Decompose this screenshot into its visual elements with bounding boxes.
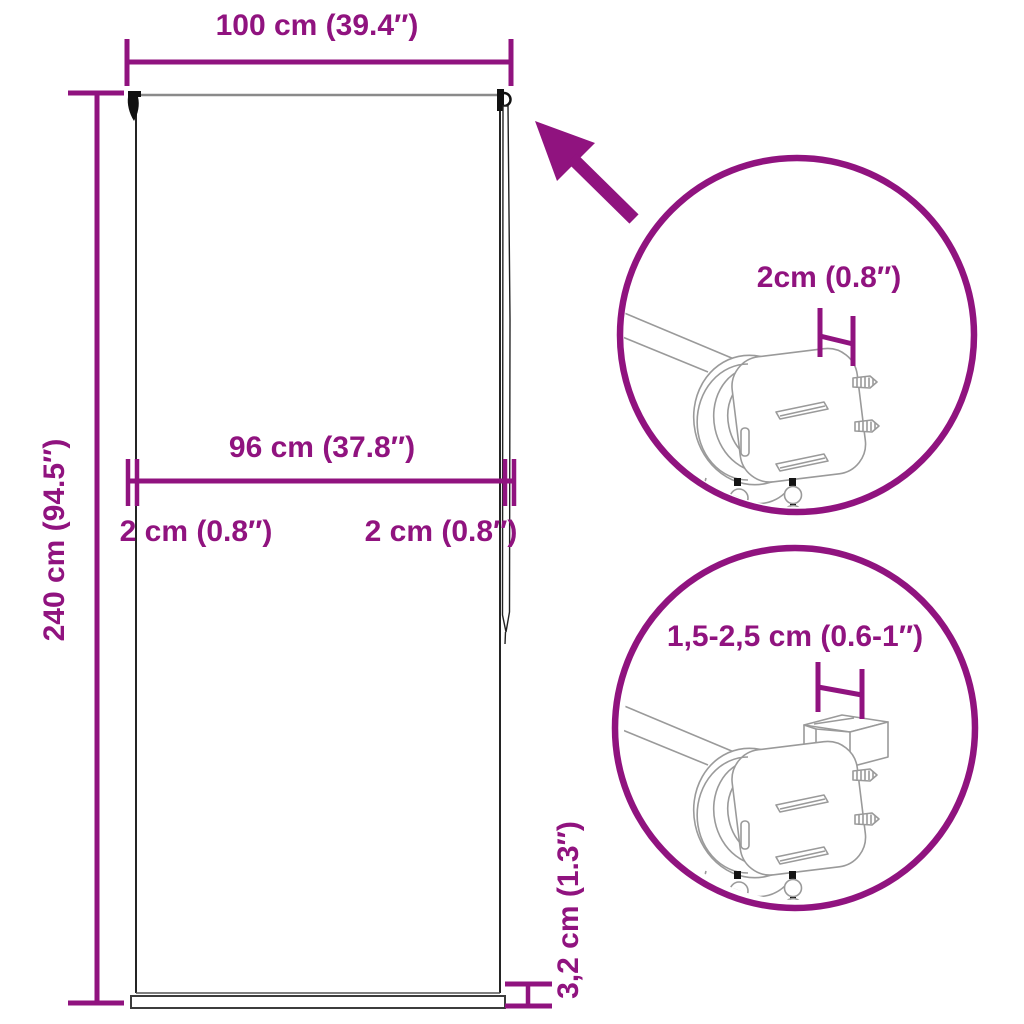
inset-screw-mount: [620, 158, 974, 525]
inset-clamp-mount: [615, 548, 975, 918]
screw-mount-drawing: [620, 312, 879, 525]
mount-bracket-left: [128, 91, 141, 121]
bottom-bar-height-label: 3,2 cm (1.3″): [551, 735, 591, 1024]
blind-bottom-bar: [131, 996, 505, 1008]
clamp-range-label: 1,5-2,5 cm (0.6-1″): [645, 619, 945, 655]
screw-mount-depth-label: 2cm (0.8″): [679, 260, 979, 296]
dimension-total-width: [127, 39, 511, 86]
clamp-mount-drawing: [620, 705, 888, 918]
pull-chain-loop: [503, 106, 511, 644]
dimension-fabric-width: [128, 459, 514, 506]
inset-dimension-bracket: [818, 662, 862, 719]
diagram-artwork: [0, 0, 1024, 1024]
total-width-label: 100 cm (39.4″): [117, 8, 517, 44]
dimension-bottom-bar: [505, 984, 552, 1006]
side-gap-right-label: 2 cm (0.8″): [291, 514, 591, 550]
product-dimension-diagram: 100 cm (39.4″) 240 cm (94.5″) 96 cm (37.…: [0, 0, 1024, 1024]
fabric-width-label: 96 cm (37.8″): [122, 430, 522, 466]
zoom-arrow: [535, 121, 634, 219]
